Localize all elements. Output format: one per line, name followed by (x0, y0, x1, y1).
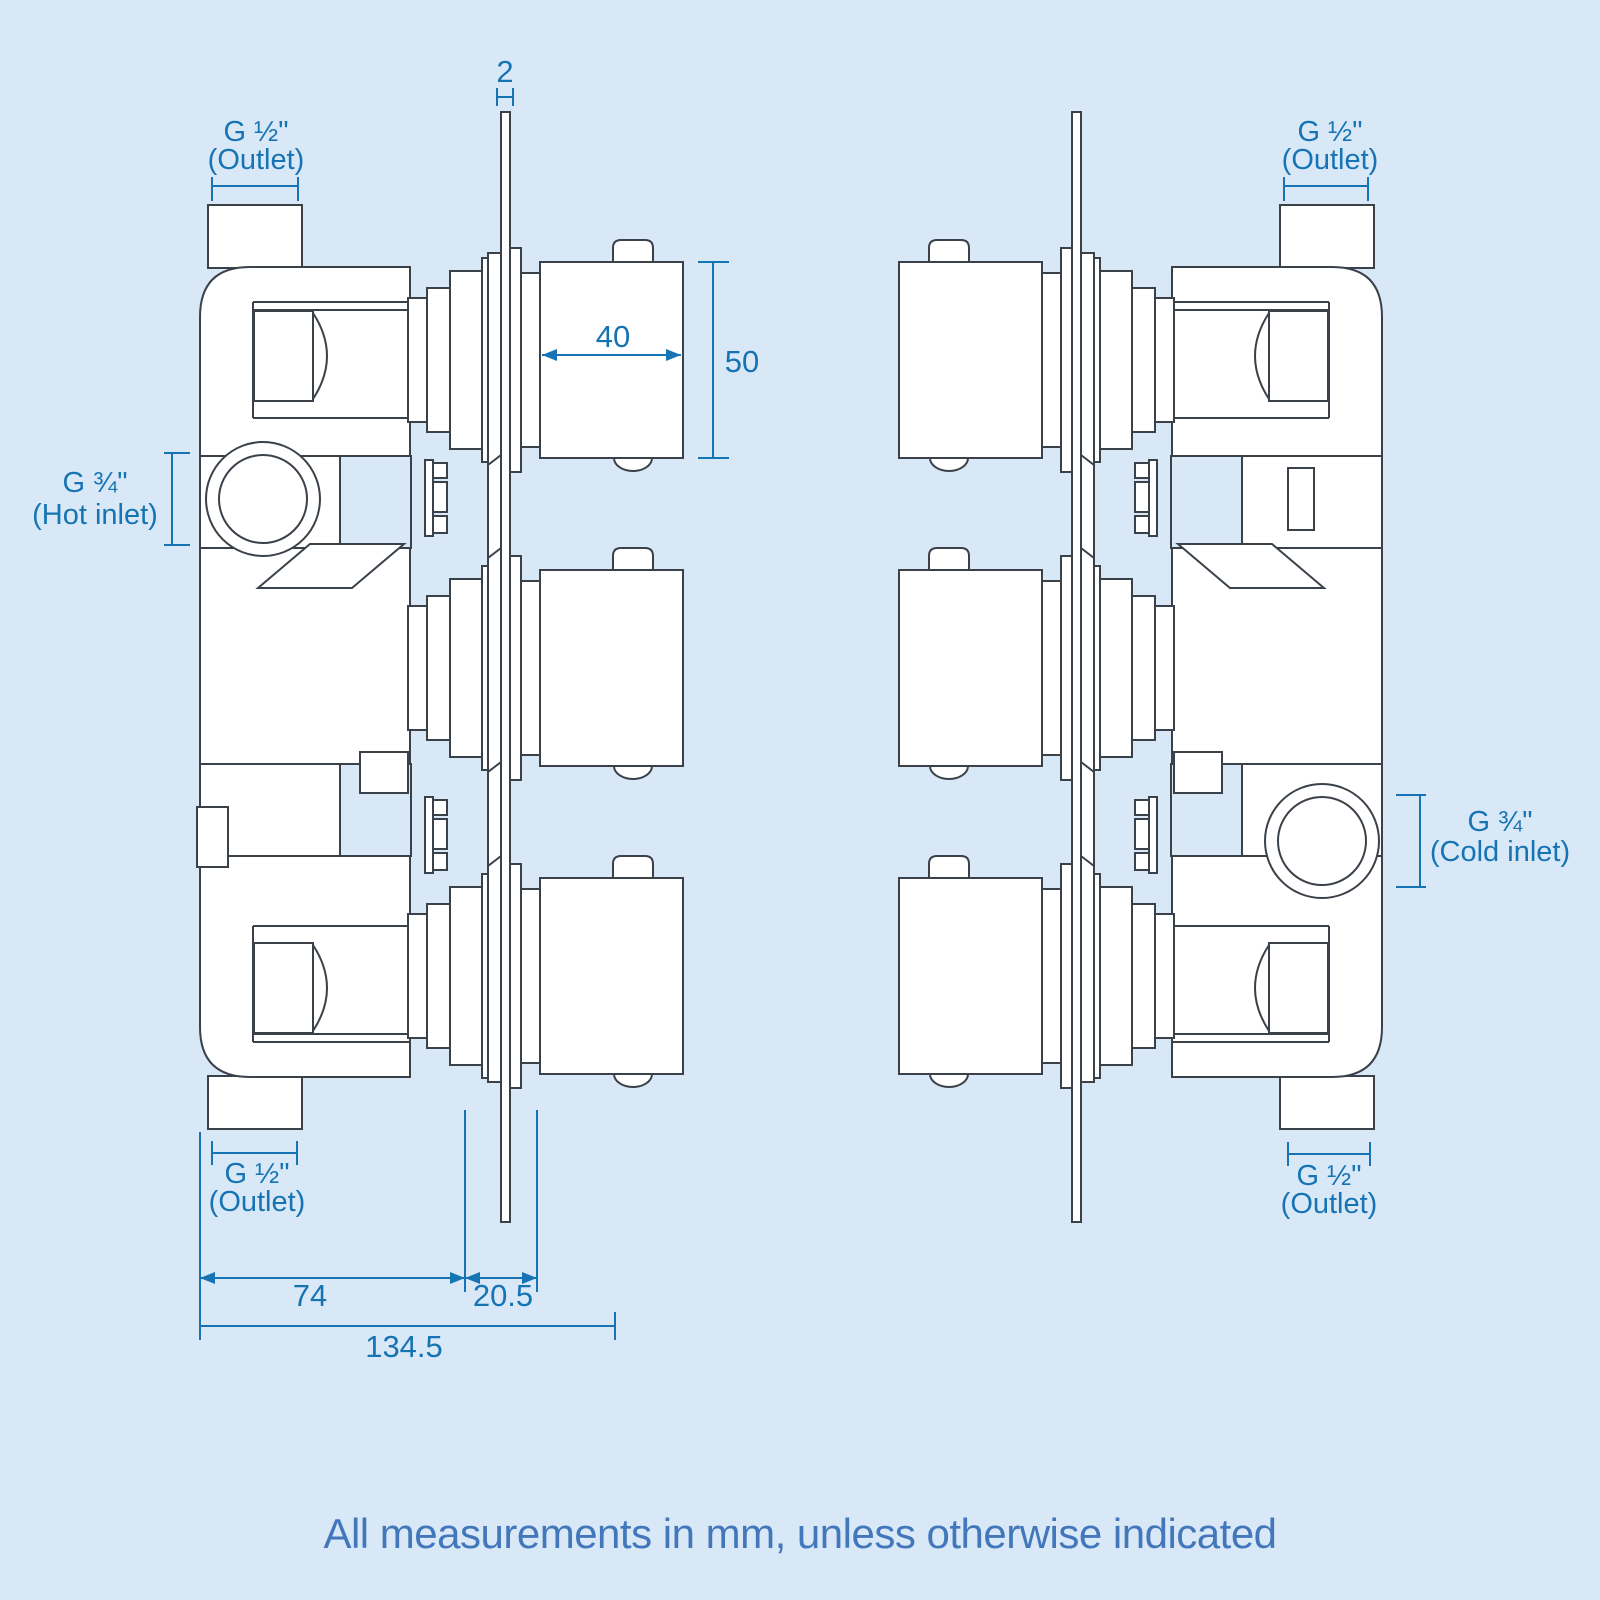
plate-thickness-dim: 2 (496, 54, 513, 89)
cold-inlet-port-bore (1278, 797, 1366, 885)
knob-width-dim: 40 (596, 319, 630, 354)
cold-inlet-label: G ¾" (1467, 806, 1532, 838)
top-outlet-label: (Outlet) (208, 144, 305, 176)
hot-inlet-label: (Hot inlet) (32, 499, 158, 531)
body-boss (197, 807, 228, 867)
control-knob (540, 548, 683, 779)
left-valve-view (197, 112, 683, 1222)
technical-drawing: G ½" (Outlet) 2 40 50 G ¾" (Hot inlet) G… (0, 0, 1600, 1600)
diagram-page: G ½" (Outlet) 2 40 50 G ¾" (Hot inlet) G… (0, 0, 1600, 1600)
valve-body (200, 112, 540, 1222)
top-outlet-label: (Outlet) (1282, 144, 1379, 176)
plate-offset-dim: 20.5 (473, 1278, 533, 1313)
dimension-bracket (497, 88, 513, 106)
units-note: All measurements in mm, unless otherwise… (323, 1510, 1276, 1557)
body-depth-dim: 74 (293, 1278, 327, 1313)
bottom-outlet-label: (Outlet) (209, 1186, 306, 1218)
control-knob (899, 240, 1042, 471)
valve-body (1042, 112, 1382, 1222)
control-knob (899, 548, 1042, 779)
hot-inlet-label: G ¾" (62, 467, 127, 499)
control-knob (540, 856, 683, 1087)
right-valve-view (899, 112, 1382, 1222)
knob-height-dim: 50 (725, 344, 759, 379)
dimension-bracket (212, 177, 298, 201)
dimension-bracket (1396, 795, 1426, 887)
body-boss (1288, 468, 1314, 530)
bottom-outlet-label: (Outlet) (1281, 1188, 1378, 1220)
cold-inlet-label: (Cold inlet) (1430, 836, 1570, 868)
control-knob (899, 856, 1042, 1087)
total-depth-dim: 134.5 (365, 1329, 443, 1364)
dimension-bracket (1284, 177, 1368, 201)
hot-inlet-port-bore (219, 455, 307, 543)
dimension-bracket (164, 453, 190, 545)
